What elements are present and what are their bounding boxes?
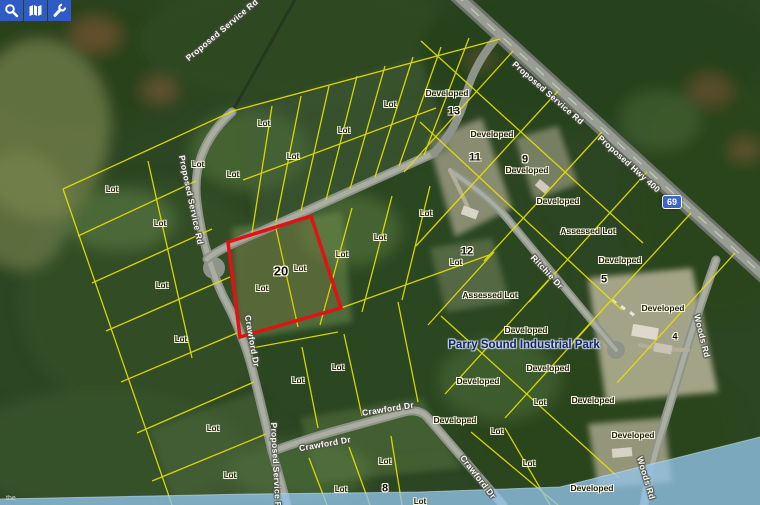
search-button[interactable] xyxy=(0,0,23,21)
map-canvas[interactable] xyxy=(0,0,760,505)
map-toolbar xyxy=(0,0,71,21)
wrench-icon xyxy=(52,3,67,18)
map-view-button[interactable] xyxy=(24,0,47,21)
magnifier-icon xyxy=(4,3,19,18)
map-viewport[interactable]: Parry Sound Industrial Park 69 the LotLo… xyxy=(0,0,760,505)
tools-button[interactable] xyxy=(48,0,71,21)
map-icon xyxy=(28,3,43,18)
